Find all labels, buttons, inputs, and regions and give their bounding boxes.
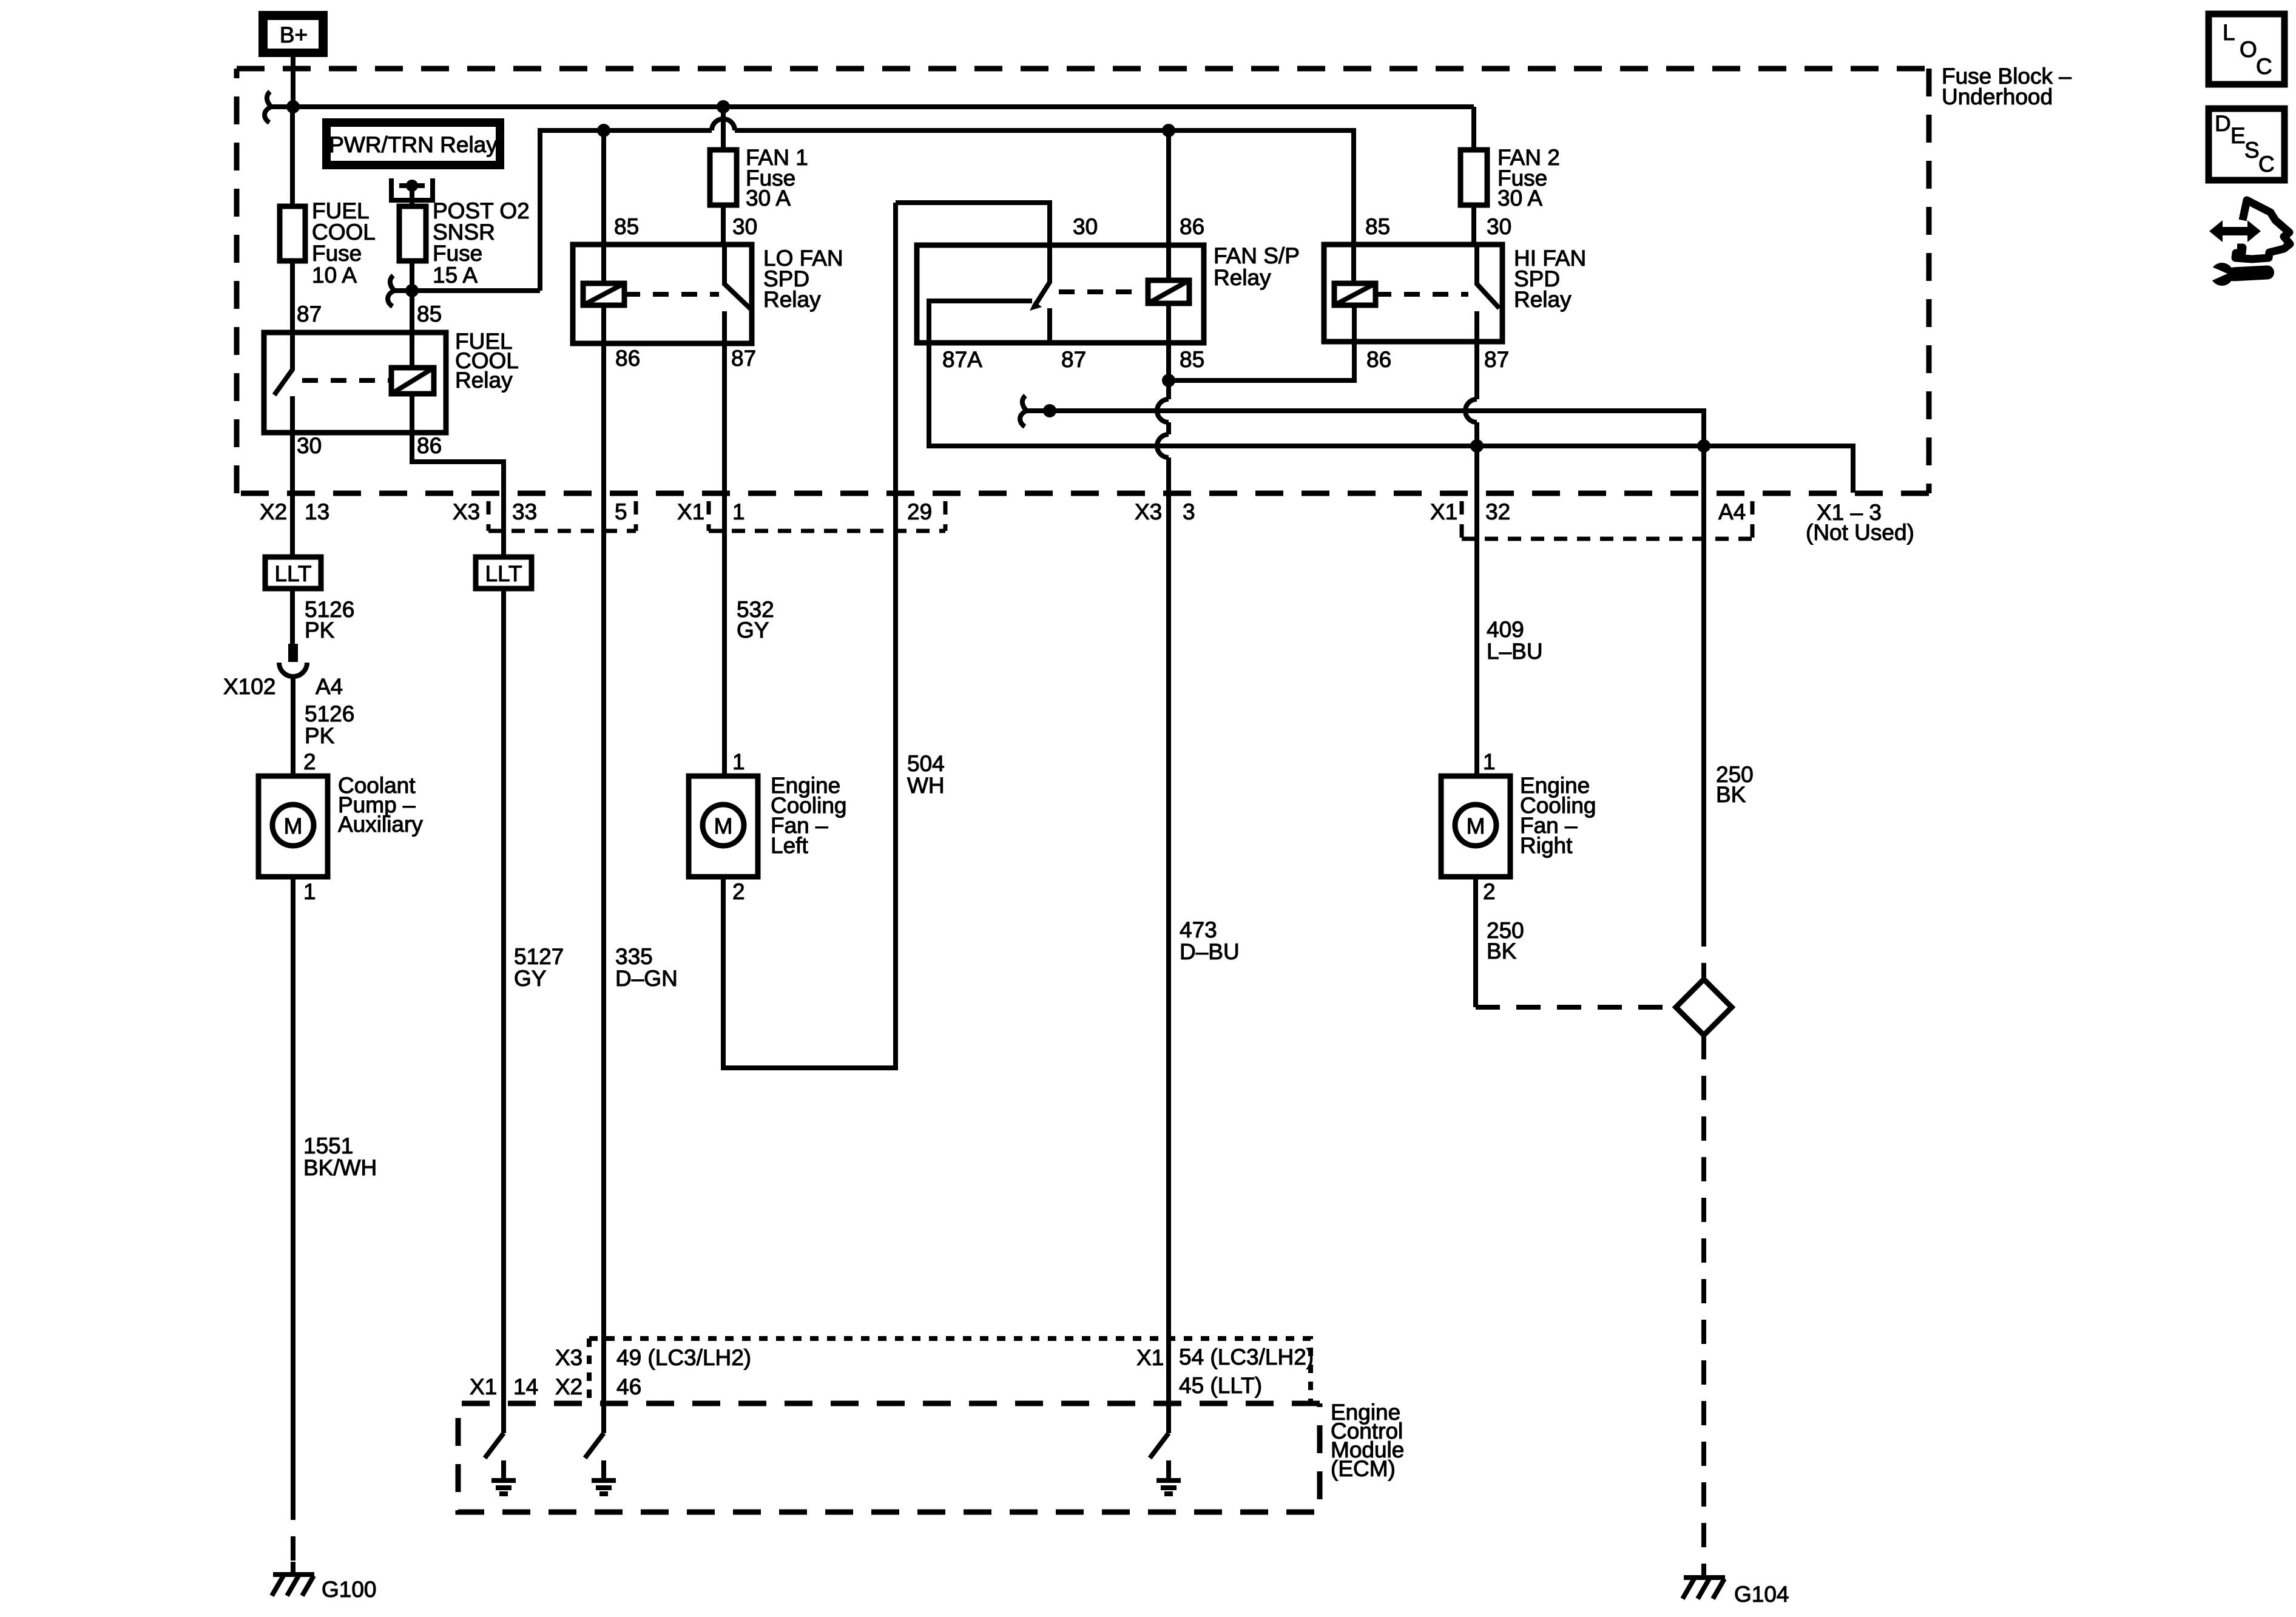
svg-text:Right: Right <box>1520 833 1573 858</box>
svg-text:Relay: Relay <box>1514 287 1572 312</box>
svg-text:30: 30 <box>297 433 322 458</box>
svg-text:Auxiliary: Auxiliary <box>338 812 423 837</box>
svg-text:32: 32 <box>1485 499 1510 524</box>
svg-text:5127: 5127 <box>514 944 564 969</box>
svg-text:33: 33 <box>512 499 537 524</box>
svg-text:46: 46 <box>616 1374 641 1399</box>
svg-text:1551: 1551 <box>303 1133 353 1158</box>
svg-text:87: 87 <box>1484 347 1509 372</box>
svg-text:14: 14 <box>513 1374 538 1399</box>
svg-text:1: 1 <box>303 879 316 904</box>
svg-text:87A: 87A <box>942 347 982 372</box>
svg-text:2: 2 <box>303 749 316 774</box>
svg-text:PWR/TRN Relay: PWR/TRN Relay <box>329 132 498 157</box>
svg-text:87: 87 <box>1061 347 1086 372</box>
svg-text:D–BU: D–BU <box>1180 939 1240 964</box>
svg-text:87: 87 <box>731 346 756 371</box>
svg-text:(Not Used): (Not Used) <box>1806 520 1914 545</box>
svg-text:409: 409 <box>1487 617 1524 642</box>
svg-text:2: 2 <box>1483 879 1496 904</box>
svg-text:(ECM): (ECM) <box>1331 1456 1396 1481</box>
svg-text:335: 335 <box>615 944 653 969</box>
svg-text:E: E <box>2230 123 2246 148</box>
svg-text:LLT: LLT <box>274 561 311 586</box>
svg-text:10 A: 10 A <box>312 263 357 288</box>
svg-text:X1: X1 <box>470 1374 497 1399</box>
svg-text:X1: X1 <box>1430 499 1457 524</box>
svg-text:13: 13 <box>305 499 329 524</box>
svg-text:86: 86 <box>1366 347 1391 372</box>
svg-text:BK/WH: BK/WH <box>303 1155 377 1180</box>
svg-text:85: 85 <box>417 302 442 326</box>
svg-text:G100: G100 <box>322 1577 377 1602</box>
svg-text:15 A: 15 A <box>433 263 478 288</box>
svg-text:3: 3 <box>1183 499 1195 524</box>
svg-text:X1: X1 <box>677 499 704 524</box>
svg-text:85: 85 <box>1365 214 1390 239</box>
svg-text:GY: GY <box>737 618 769 643</box>
svg-text:49 (LC3/LH2): 49 (LC3/LH2) <box>616 1345 751 1370</box>
svg-text:54 (LC3/LH2): 54 (LC3/LH2) <box>1179 1345 1314 1369</box>
svg-text:PK: PK <box>305 618 335 643</box>
svg-text:M: M <box>284 814 303 839</box>
svg-text:X1: X1 <box>1136 1345 1164 1370</box>
svg-text:BK: BK <box>1716 782 1746 807</box>
svg-text:Left: Left <box>771 833 808 858</box>
svg-text:Fuse: Fuse <box>433 241 482 266</box>
svg-text:FAN S/P: FAN S/P <box>1214 243 1300 268</box>
svg-text:30: 30 <box>1487 214 1511 239</box>
svg-text:G104: G104 <box>1734 1582 1789 1607</box>
svg-text:1: 1 <box>1483 749 1496 774</box>
svg-text:D: D <box>2215 111 2231 136</box>
svg-text:X2: X2 <box>555 1374 582 1399</box>
svg-text:X102: X102 <box>223 674 275 699</box>
svg-text:B+: B+ <box>280 22 308 47</box>
svg-text:30 A: 30 A <box>746 186 791 211</box>
svg-text:Underhood: Underhood <box>1942 84 2053 109</box>
svg-text:Relay: Relay <box>455 368 513 393</box>
svg-text:1: 1 <box>732 749 745 774</box>
svg-text:86: 86 <box>615 346 640 371</box>
svg-text:LLT: LLT <box>485 561 522 586</box>
svg-text:S: S <box>2244 138 2260 163</box>
svg-text:30 A: 30 A <box>1497 186 1542 211</box>
svg-text:87: 87 <box>297 302 322 326</box>
svg-text:WH: WH <box>907 773 945 798</box>
svg-text:85: 85 <box>614 214 639 239</box>
svg-text:Fuse: Fuse <box>312 241 362 266</box>
svg-text:X3: X3 <box>453 499 480 524</box>
svg-text:X3: X3 <box>1135 499 1162 524</box>
svg-text:Relay: Relay <box>763 287 821 312</box>
svg-text:5126: 5126 <box>305 701 354 726</box>
svg-text:30: 30 <box>732 214 757 239</box>
svg-text:85: 85 <box>1180 347 1204 372</box>
svg-text:L: L <box>2223 20 2235 45</box>
svg-text:O: O <box>2240 37 2257 62</box>
svg-text:30: 30 <box>1073 214 1098 239</box>
svg-text:Relay: Relay <box>1214 265 1271 290</box>
svg-text:1: 1 <box>732 499 745 524</box>
svg-text:C: C <box>2256 54 2272 79</box>
svg-text:D–GN: D–GN <box>615 966 678 991</box>
svg-text:X3: X3 <box>555 1345 582 1370</box>
svg-text:L–BU: L–BU <box>1487 639 1543 664</box>
svg-text:504: 504 <box>907 751 945 776</box>
svg-text:5: 5 <box>615 499 627 524</box>
svg-text:86: 86 <box>1180 214 1204 239</box>
svg-text:45 (LLT): 45 (LLT) <box>1179 1373 1262 1398</box>
svg-text:C: C <box>2258 152 2275 177</box>
svg-text:M: M <box>1467 814 1485 839</box>
svg-text:BK: BK <box>1487 939 1517 964</box>
svg-text:M: M <box>714 814 733 839</box>
svg-text:29: 29 <box>907 499 932 524</box>
svg-text:GY: GY <box>514 966 546 991</box>
svg-text:473: 473 <box>1180 917 1217 942</box>
svg-text:A4: A4 <box>1718 499 1746 524</box>
svg-text:PK: PK <box>305 723 335 748</box>
svg-text:A4: A4 <box>316 674 343 699</box>
svg-text:2: 2 <box>732 879 745 904</box>
svg-text:86: 86 <box>417 433 442 458</box>
svg-text:X2: X2 <box>260 499 287 524</box>
